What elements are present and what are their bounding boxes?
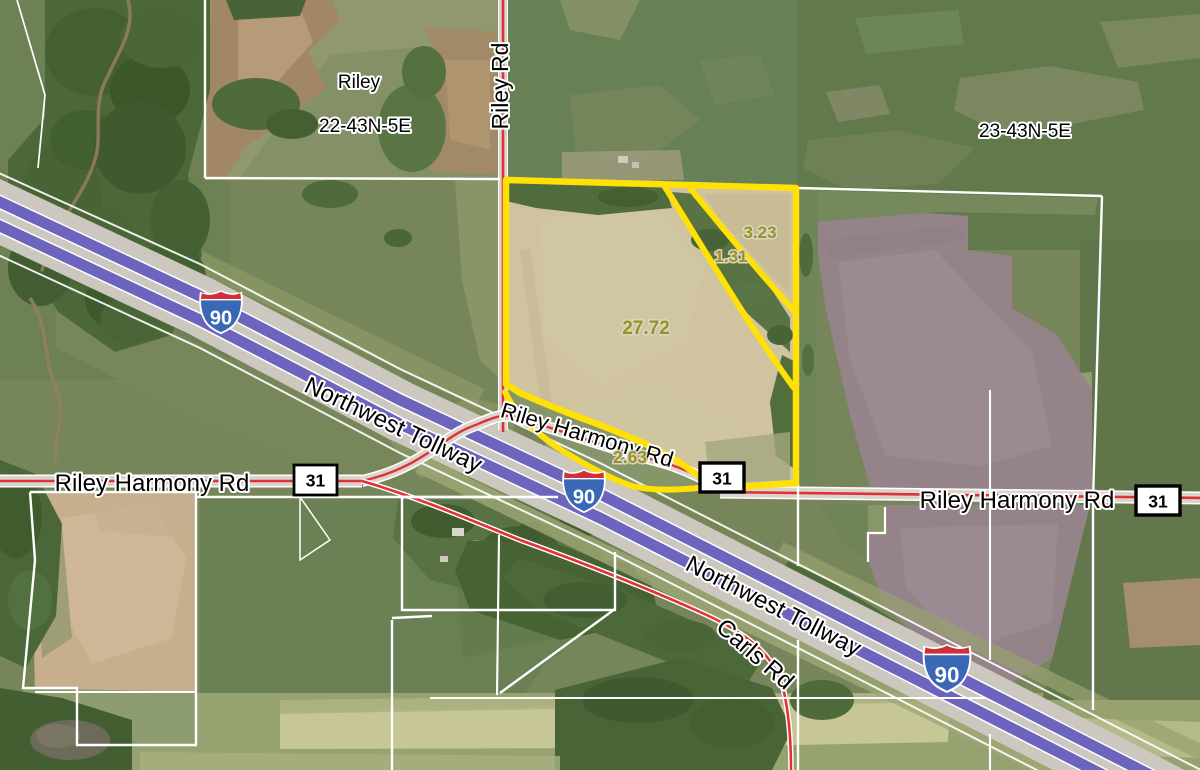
svg-text:1.31: 1.31 [714,247,747,266]
svg-text:Riley Rd: Riley Rd [487,43,513,130]
svg-text:27.72: 27.72 [622,318,670,339]
svg-text:3.23: 3.23 [743,223,776,242]
svg-text:31: 31 [1148,492,1168,512]
svg-text:23-43N-5E: 23-43N-5E [979,121,1071,142]
svg-text:Riley Harmony Rd: Riley Harmony Rd [55,470,250,497]
svg-text:Riley Harmony Rd: Riley Harmony Rd [920,487,1115,514]
svg-text:31: 31 [712,469,732,489]
svg-text:Riley: Riley [338,72,381,93]
svg-text:22-43N-5E: 22-43N-5E [319,116,411,137]
svg-text:31: 31 [306,471,326,491]
svg-text:2.63: 2.63 [613,447,647,467]
